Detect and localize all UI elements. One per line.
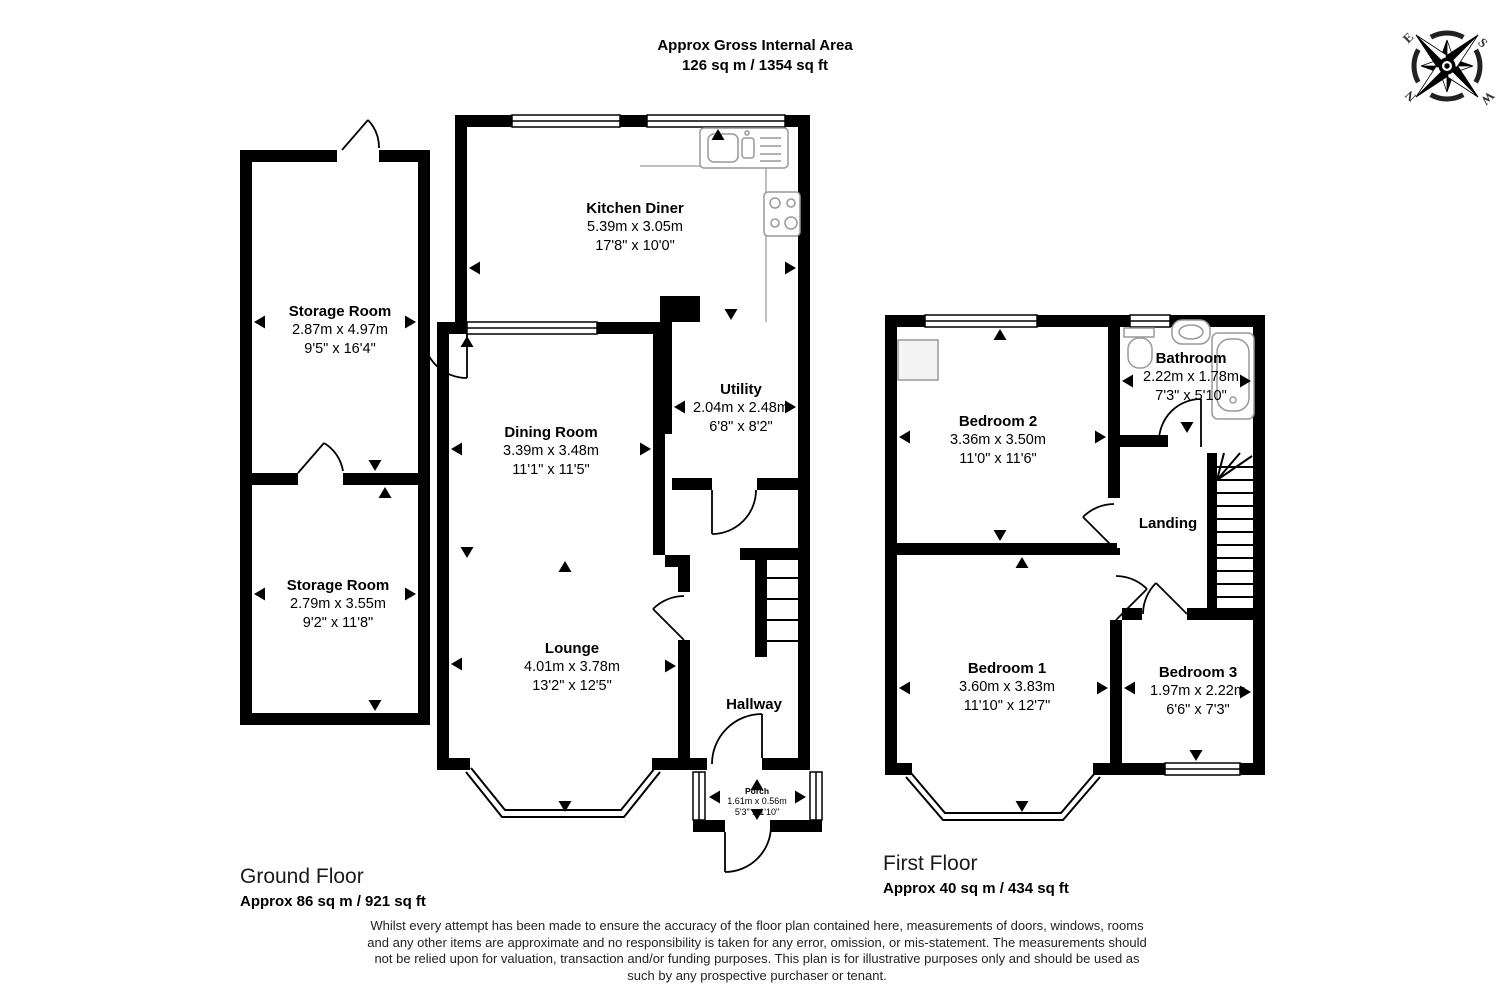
first-floor-title: First Floor (883, 852, 978, 876)
measure-arrow (994, 530, 1007, 541)
measure-arrow (369, 700, 382, 711)
bay-window-lounge (466, 768, 660, 817)
measure-arrow (451, 658, 462, 671)
measure-arrow (461, 547, 474, 558)
room-label-bedroom-3: Bedroom 3 1.97m x 2.22m 6'6" x 7'3" (1150, 663, 1246, 720)
measure-arrow (559, 561, 572, 572)
ground-floor-title: Ground Floor (240, 865, 364, 889)
measure-arrow (785, 262, 796, 275)
measure-arrow (1190, 750, 1203, 761)
staircase-ground (767, 578, 798, 641)
room-label-utility: Utility 2.04m x 2.48m 6'8" x 8'2" (693, 380, 789, 437)
title-line2: 126 sq m / 1354 sq ft (657, 56, 852, 76)
measure-arrow (451, 443, 462, 456)
measure-arrow (1124, 682, 1135, 695)
measure-arrow (795, 791, 806, 804)
measure-arrow (369, 460, 382, 471)
measure-arrow (899, 682, 910, 695)
measure-arrow (1181, 422, 1194, 433)
bay-window-bedroom1 (906, 773, 1100, 820)
measure-arrow (405, 316, 416, 329)
room-label-kitchen-diner: Kitchen Diner 5.39m x 3.05m 17'8" x 10'0… (586, 199, 684, 256)
measure-arrow (899, 431, 910, 444)
first-floor-area: Approx 40 sq m / 434 sq ft (883, 880, 1069, 897)
room-label-dining-room: Dining Room 3.39m x 3.48m 11'1" x 11'5" (503, 423, 599, 480)
kitchen-sink-fixture (700, 128, 788, 168)
basin-fixture (1172, 320, 1210, 344)
room-label-bathroom: Bathroom 2.22m x 1.78m 7'3" x 5'10" (1143, 349, 1239, 406)
measure-arrow (379, 487, 392, 498)
measure-arrow (1095, 431, 1106, 444)
title-line1: Approx Gross Internal Area (657, 36, 852, 56)
page-title: Approx Gross Internal Area 126 sq m / 13… (657, 36, 852, 76)
floorplan-page: Approx Gross Internal Area 126 sq m / 13… (0, 0, 1500, 999)
measure-arrow (1097, 682, 1108, 695)
measure-arrow (461, 336, 474, 347)
doors (298, 120, 1201, 872)
measure-arrow (254, 588, 265, 601)
ground-floor-area: Approx 86 sq m / 921 sq ft (240, 893, 426, 910)
room-label-bedroom-2: Bedroom 2 3.36m x 3.50m 11'0" x 11'6" (950, 412, 1046, 469)
room-label-storage-room-2: Storage Room 2.79m x 3.55m 9'2" x 11'8" (287, 576, 390, 633)
disclaimer-text: Whilst every attempt has been made to en… (362, 918, 1152, 984)
measure-arrow (405, 588, 416, 601)
room-label-hallway: Hallway (726, 695, 782, 714)
measure-arrow (1122, 375, 1133, 388)
measure-arrow (665, 660, 676, 673)
measure-arrow (725, 309, 738, 320)
measure-arrow (640, 443, 651, 456)
measure-arrow (709, 791, 720, 804)
measure-arrow (469, 262, 480, 275)
floorplan-canvas (0, 0, 1500, 999)
room-label-storage-room-1: Storage Room 2.87m x 4.97m 9'5" x 16'4" (289, 302, 392, 359)
room-label-landing: Landing (1139, 514, 1197, 533)
hob-fixture (764, 192, 800, 236)
measure-arrow (994, 329, 1007, 340)
wardrobe-box-bedroom2 (898, 340, 938, 380)
room-label-lounge: Lounge 4.01m x 3.78m 13'2" x 12'5" (524, 639, 620, 696)
staircase-first (1217, 453, 1253, 597)
measure-arrow (254, 316, 265, 329)
room-label-porch: Porch 1.61m x 0.56m 5'3" x 1'10" (727, 786, 787, 817)
room-label-bedroom-1: Bedroom 1 3.60m x 3.83m 11'10" x 12'7" (959, 659, 1055, 716)
measure-arrow (1016, 801, 1029, 812)
compass-icon (1414, 33, 1480, 99)
measure-arrow (674, 401, 685, 414)
measure-arrow (1016, 557, 1029, 568)
